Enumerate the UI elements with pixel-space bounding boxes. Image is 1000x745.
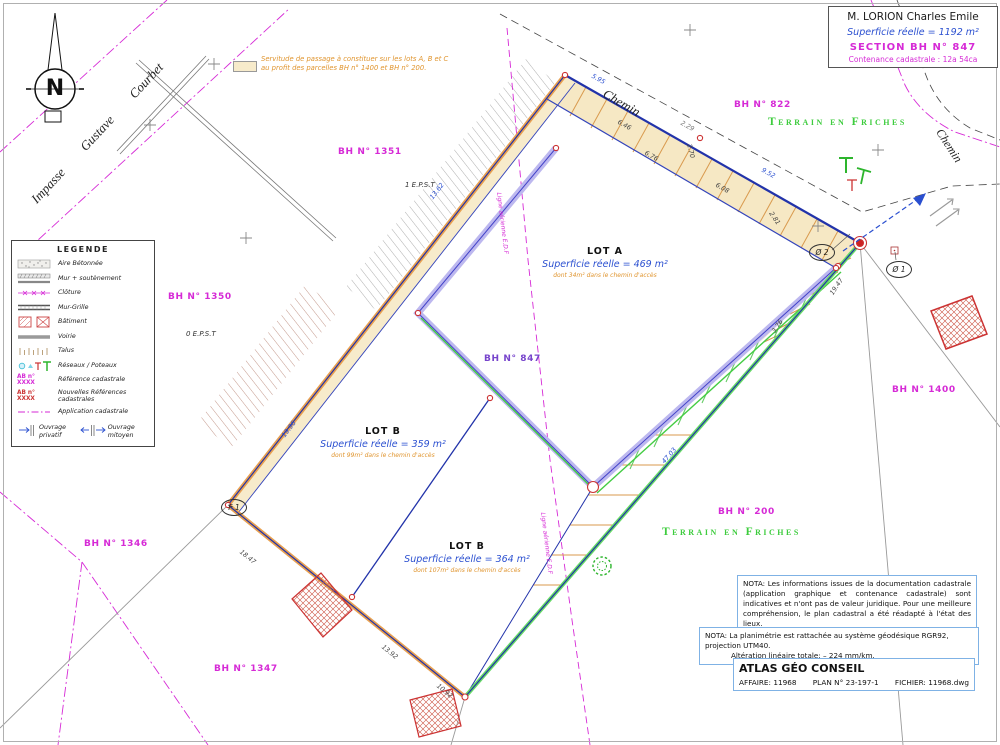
file-name: FICHIER: 11968.dwg: [895, 678, 969, 687]
cadastral-ref-sample: AB n° XXXX: [17, 374, 53, 386]
legend-item-application: Application cadastrale: [17, 406, 149, 418]
legend-item-murgrille: Mur-Grille: [17, 302, 149, 314]
legend-item-ouvrage: Ouvrage privatif Ouvrage mitoyen: [17, 422, 149, 441]
parcel-bh-1400: BH N° 1400: [892, 385, 956, 395]
legend-item-batiment: Bâtiment: [17, 316, 149, 328]
plan-number: PLAN N° 23-197-1: [813, 678, 879, 687]
legend-item-talus: Talus: [17, 345, 149, 357]
fence-icon: [17, 287, 53, 299]
legend-title: LEGENDE: [17, 245, 149, 254]
legend-item-cloture: Clôture: [17, 287, 149, 299]
legend-item-mur: Mur + soutènement: [17, 273, 149, 285]
nota-cadastral-box: NOTA: Les informations issues de la docu…: [737, 575, 977, 633]
wall-grille-icon: [17, 302, 53, 314]
parcel-bh-847: BH N° 847: [484, 354, 541, 364]
new-cadastral-ref-sample: AB n° XXXX: [17, 390, 53, 402]
north-arrow-icon: [26, 13, 84, 122]
concrete-area-icon: [17, 258, 53, 270]
affaire-number: AFFAIRE: 11968: [739, 678, 797, 687]
cadastral-capacity: Contenance cadastrale : 12a 54ca: [831, 55, 995, 64]
nota-geodesic-line1: NOTA: La planimétrie est rattachée au sy…: [705, 631, 973, 651]
lot-b2-label: LOT B Superficie réelle = 364 m² dont 10…: [392, 541, 542, 574]
legend-item-voirie: Voirie: [17, 331, 149, 343]
legend-box: LEGENDE Aire Bétonnée Mur + soutènement …: [11, 240, 155, 447]
parcel-bh-1351: BH N° 1351: [338, 147, 402, 157]
servitude-note-line2: au profit des parcelles BH n° 1400 et BH…: [261, 64, 426, 73]
servitude-note-line1: Servitude de passage à constituer sur le…: [261, 55, 448, 64]
legend-item-new-reference: AB n° XXXX Nouvelles Références cadastra…: [17, 389, 149, 404]
eps-label-1: 1 E.P.S.T: [405, 181, 435, 189]
parcel-bh-1346: BH N° 1346: [84, 539, 148, 549]
lot-b1-label: LOT B Superficie réelle = 359 m² dont 99…: [308, 426, 458, 459]
cadastral-application-icon: [17, 406, 53, 418]
total-area: Superficie réelle = 1192 m²: [831, 27, 995, 38]
point-o1: Ø 1: [886, 261, 912, 278]
legend-item-reseaux: Réseaux / Poteaux: [17, 360, 149, 372]
point-f1: F 1: [221, 499, 247, 516]
shared-work-icon: [80, 422, 106, 441]
parcel-bh-1350: BH N° 1350: [168, 292, 232, 302]
networks-poles-icon: [17, 360, 53, 372]
owner-name: M. LORION Charles Emile: [831, 11, 995, 23]
legend-item-reference: AB n° XXXX Référence cadastrale: [17, 374, 149, 386]
north-label: N: [44, 76, 66, 101]
terrain-friches-south: Terrain en Friches: [662, 526, 801, 538]
section-number: SECTION BH N° 847: [831, 42, 995, 53]
wall-icon: [17, 273, 53, 285]
servitude-swatch: [233, 61, 257, 72]
eps-label-0: 0 E.P.S.T: [186, 330, 216, 338]
parcel-bh-200: BH N° 200: [718, 507, 775, 517]
point-o2: Ø 2: [809, 244, 835, 261]
slope-icon: [17, 345, 53, 357]
parcel-bh-822: BH N° 822: [734, 100, 791, 110]
building-icon: [17, 316, 53, 328]
title-block: M. LORION Charles Emile Superficie réell…: [828, 6, 998, 68]
lot-a-label: LOT A Superficie réelle = 469 m² dont 34…: [530, 246, 680, 279]
private-work-icon: [17, 422, 37, 441]
footer-cartouche: ATLAS GÉO CONSEIL AFFAIRE: 11968 PLAN N°…: [733, 658, 975, 691]
roadway-icon: [17, 331, 53, 343]
parcel-bh-1347: BH N° 1347: [214, 664, 278, 674]
terrain-friches-north: Terrain en Friches: [768, 116, 907, 128]
legend-item-aire: Aire Bétonnée: [17, 258, 149, 270]
company-name: ATLAS GÉO CONSEIL: [739, 662, 969, 675]
survey-plan-sheet: N M. LORION Charles Emile Superficie rée…: [0, 0, 1000, 745]
